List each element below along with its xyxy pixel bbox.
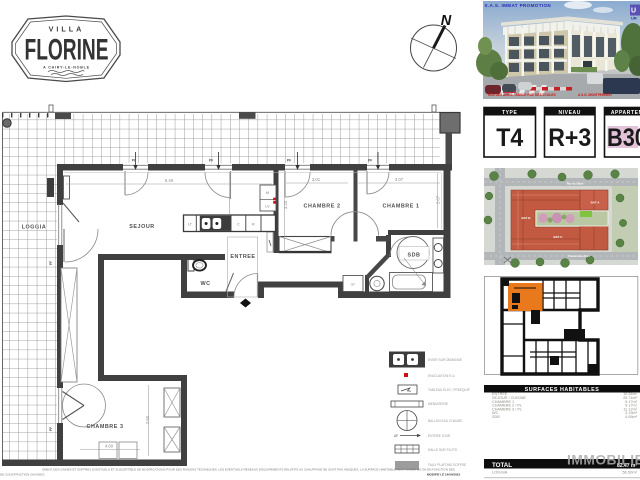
svg-text:BAT A: BAT A (591, 201, 601, 205)
svg-text:AF: AF (394, 434, 398, 438)
svg-text:TYPE: TYPE (502, 110, 518, 116)
svg-text:3.01: 3.01 (312, 177, 321, 182)
svg-text:MODIFIE LE 14/04/2023: MODIFIE LE 14/04/2023 (427, 473, 460, 477)
svg-text:LOGGIA: LOGGIA (492, 469, 508, 474)
svg-text:ENTREE D'AIR: ENTREE D'AIR (428, 434, 451, 438)
svg-text:3.20: 3.20 (283, 200, 288, 209)
svg-text:APPARTEMENT: APPARTEMENT (611, 110, 640, 116)
svg-text:DE CONSTRUCTION CHOISIES: DE CONSTRUCTION CHOISIES (0, 473, 44, 477)
svg-text:LOGGIA: LOGGIA (22, 225, 47, 231)
svg-text:R: R (252, 222, 255, 226)
svg-text:SEJOUR: SEJOUR (129, 224, 154, 230)
svg-text:M: M (266, 191, 269, 195)
svg-text:MENUISERIE: MENUISERIE (428, 402, 448, 406)
svg-text:56.50m²: 56.50m² (622, 469, 637, 474)
svg-text:BAT B: BAT B (522, 216, 532, 220)
svg-text:EVACUATION E.U.: EVACUATION E.U. (428, 374, 455, 378)
svg-text:2.67: 2.67 (436, 195, 441, 204)
svg-text:8.49: 8.49 (165, 178, 174, 183)
svg-text:B301: B301 (607, 124, 640, 152)
svg-text:C: C (237, 222, 240, 226)
svg-text:3.07: 3.07 (395, 177, 404, 182)
svg-text:CHAMBRE 1: CHAMBRE 1 (383, 204, 420, 210)
svg-text:T4: T4 (496, 124, 523, 152)
svg-text:NIVEAU: NIVEAU (558, 110, 581, 116)
svg-text:4.65m²: 4.65m² (625, 415, 638, 419)
svg-text:PF: PF (49, 427, 53, 431)
svg-text:CHAMBRE 2: CHAMBRE 2 (304, 204, 341, 210)
svg-text:R+3: R+3 (548, 124, 591, 152)
svg-text:WC: WC (200, 281, 210, 287)
svg-text:SMENT DES GAINES ET SOFFRES EV: SMENT DES GAINES ET SOFFRES EVENTUELS ET… (42, 468, 455, 472)
svg-text:SDB: SDB (407, 252, 420, 258)
svg-text:FLORINE: FLORINE (25, 34, 109, 67)
svg-text:Rue du Stade: Rue du Stade (567, 182, 584, 186)
svg-text:A S.G. MONTFERRIER: A S.G. MONTFERRIER (578, 93, 612, 97)
svg-text:4.60: 4.60 (105, 444, 114, 449)
svg-text:U: U (631, 8, 636, 15)
svg-text:PF: PF (287, 158, 291, 162)
svg-text:N: N (441, 13, 452, 29)
svg-text:BAT C: BAT C (554, 235, 564, 239)
svg-text:Chemin des Aires: Chemin des Aires (568, 254, 590, 258)
svg-text:UR: UR (631, 16, 637, 21)
svg-text:BALLON EAU CHAUDE: BALLON EAU CHAUDE (428, 419, 462, 423)
svg-text:DALLE SUR PLOTS: DALLE SUR PLOTS (428, 448, 457, 452)
svg-text:LV: LV (265, 205, 270, 209)
svg-text:GF: GF (351, 283, 356, 287)
svg-text:RUE DES AIRES - ANGLE RUE DES: RUE DES AIRES - ANGLE RUE DES ECOLES (488, 93, 556, 97)
svg-text:CHAMBRE 3: CHAMBRE 3 (87, 424, 124, 430)
svg-text:SURFACES HABITABLES: SURFACES HABITABLES (525, 387, 600, 393)
svg-text:PF: PF (209, 158, 213, 162)
svg-text:PF: PF (132, 158, 136, 162)
svg-text:VILLA: VILLA (49, 25, 85, 34)
svg-text:2.60: 2.60 (145, 415, 150, 424)
svg-text:ENTREE: ENTREE (230, 254, 255, 260)
svg-text:TOTAL: TOTAL (492, 462, 512, 469)
svg-text:S.A.S. IMMAT PROMOTION: S.A.S. IMMAT PROMOTION (485, 3, 552, 8)
svg-text:PF: PF (49, 261, 53, 265)
svg-text:A CHIRY-LE-NOBLE: A CHIRY-LE-NOBLE (43, 66, 90, 70)
svg-text:EVIER SUR DEMANDE: EVIER SUR DEMANDE (428, 358, 462, 362)
svg-text:TABLEAU ELEC. PREEQUIP.: TABLEAU ELEC. PREEQUIP. (428, 388, 470, 392)
svg-text:FAUX PLAFOND SOFFRE: FAUX PLAFOND SOFFRE (428, 463, 466, 467)
svg-text:SDB: SDB (492, 415, 500, 419)
svg-text:IMMOBILIER: IMMOBILIER (567, 453, 640, 468)
svg-text:PF: PF (368, 158, 372, 162)
